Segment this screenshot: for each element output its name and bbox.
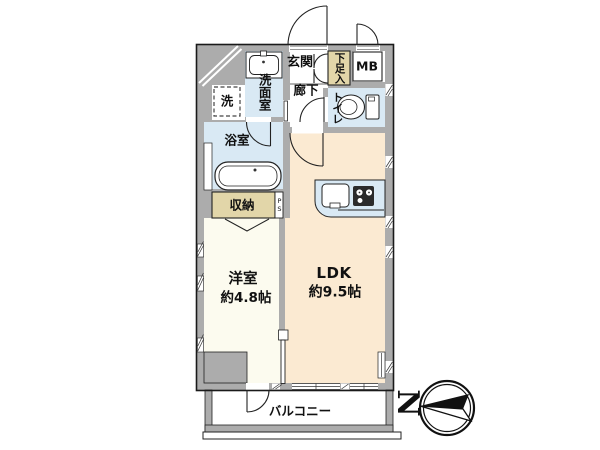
washroom-door-panel	[284, 101, 288, 121]
shoe-cabinet-label: 下足入	[333, 52, 344, 84]
bathroom-label: 浴室	[224, 133, 249, 146]
sliding-door-pocket	[279, 330, 289, 340]
pipe-space-label: PS	[276, 197, 283, 213]
stove-icon	[353, 186, 374, 206]
meter-box-label: MB	[356, 59, 378, 72]
floorplan-canvas: 玄関 下足入 MB 洗面室 洗 廊下 トイレ 浴室 収納 PS 洋室 約4.8帖…	[0, 0, 600, 450]
storage-label: 収納	[229, 198, 254, 211]
western-room-label: 洋室	[229, 272, 258, 287]
compass-north-label: N	[391, 389, 423, 416]
kitchen-counter	[315, 180, 385, 217]
toilet-label: トイレ	[331, 92, 343, 125]
ldk-label: LDK	[316, 266, 351, 282]
compass-icon	[420, 381, 474, 435]
ldk-size-label: 約9.5帖	[309, 286, 362, 301]
western-room-size-label: 約4.8帖	[221, 291, 272, 305]
bathtub-icon	[215, 162, 281, 190]
balcony-label: バルコニー	[269, 404, 331, 417]
balcony-rim	[203, 432, 401, 439]
washroom-label: 洗面室	[257, 73, 270, 111]
duct-shaft	[204, 143, 212, 190]
sliding-door-panel	[281, 340, 285, 384]
hallway-label: 廊下	[293, 83, 318, 96]
ldk-area	[283, 133, 385, 383]
washing-machine-label: 洗	[221, 94, 234, 107]
genkan-label: 玄関	[287, 56, 313, 70]
